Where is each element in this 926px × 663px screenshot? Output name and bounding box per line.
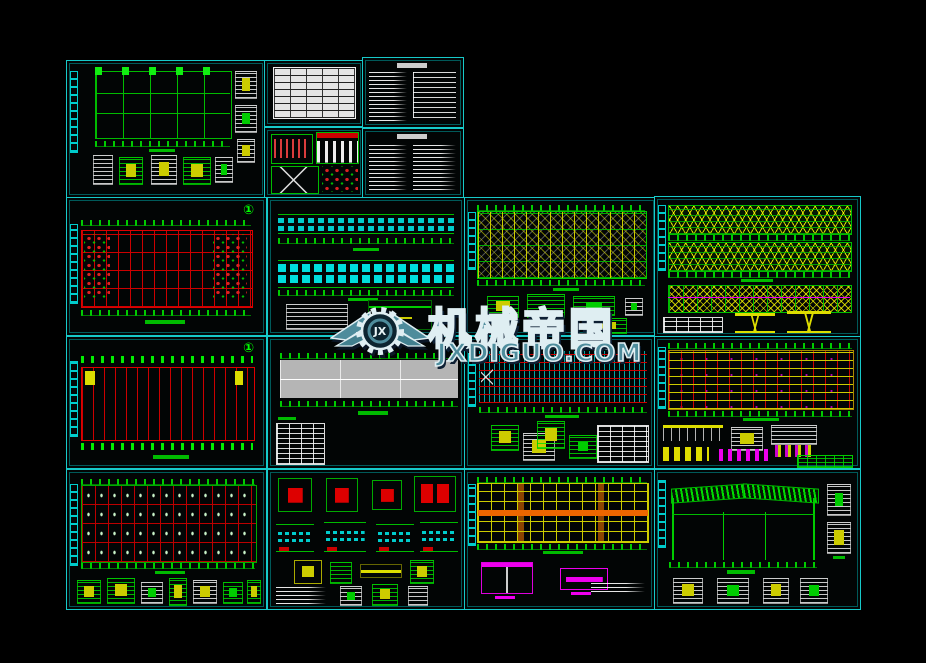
beam-elevation-2 [278,260,454,288]
gray-slab-band [280,360,458,398]
drawing-title-bar [727,570,755,574]
notes-title-bar [397,63,427,68]
side-detail [827,484,851,516]
connection-detail [763,578,789,604]
rail-detail [316,132,359,164]
drawing-title-bar [353,248,379,251]
dimension-row [95,141,230,147]
bracing-grid [477,211,647,279]
drawing-title-bar [358,411,388,415]
truss-detail [735,313,775,333]
schedule-table [273,67,356,119]
notes-table [413,72,456,118]
logo-monogram: JX [373,325,387,338]
beam-hatch [278,275,454,283]
x-brace-elevation [668,285,852,313]
anchor-plate-detail [326,478,358,512]
title-strip [70,224,78,304]
girt-detail [731,427,763,451]
title-strip [70,71,78,153]
bolt-detail [408,586,428,606]
dimension-row [668,235,850,241]
footing-detail [107,578,135,604]
frame-haunch-blobs [95,67,230,75]
roof-rafter-left [671,483,747,503]
bracing-detail [625,298,643,316]
notes-text-column [369,142,407,190]
drawing-title-bar [149,149,175,152]
drawing-title-bar [743,418,779,421]
hatched-band [668,242,852,272]
frame-beam-line [95,113,230,114]
detail-glyph [235,71,257,99]
yellow-red-grid [668,350,854,410]
girt-elevation-grid [477,483,649,543]
tie-beam [672,514,815,515]
frame-grid [95,71,232,139]
detail-label-bar [833,556,845,559]
bolt-detail [294,560,322,584]
detail-label-bar [495,596,515,599]
sheet-wall-girt-elevation [464,469,655,610]
dimension-row [668,411,852,417]
magenta-line [668,297,850,298]
dimension-row [81,310,251,316]
girt-section-detail [663,425,723,441]
notes-title-bar [397,134,427,139]
purlin-detail [537,421,565,449]
title-strip [658,347,666,409]
watermark-logo: JX [330,300,430,362]
notes-text-column [413,142,456,190]
sheet-column-layout-plan: ① [66,336,267,469]
magenta-detail-strip [719,449,769,461]
dimension-row [668,343,852,349]
bolt-detail [340,586,362,606]
title-strip [658,480,666,548]
interior-post [765,512,766,560]
sheet-girt-layout-plan [654,336,861,469]
sheet-schedule-table [264,60,364,127]
magenta-detail [481,562,533,594]
notes-text [591,580,645,592]
frame-column [813,498,815,560]
dimension-row [477,280,645,286]
parts-table [597,425,649,463]
footing-detail [169,578,187,606]
frame-beam-line [95,93,230,94]
hatched-band [668,205,852,235]
connection-detail [800,578,828,604]
bolt-detail [372,584,398,606]
slab-ticks [280,360,458,398]
detail-mark-circle: ① [243,204,254,217]
dimension-row [278,238,454,244]
beam-elevation-1 [278,214,454,234]
title-strip [70,484,78,566]
drawing-title-bar [145,320,185,324]
title-strip [468,484,476,546]
girt-detail [771,425,817,445]
dimension-row [479,407,647,413]
dimension-row [81,220,251,226]
yellow-end-block [235,371,243,385]
beam-hatch [278,226,454,231]
detail-glyph [237,139,255,163]
parts-table [663,317,723,333]
watermark-domain-text: JXDIGUO.COM [437,338,642,367]
base-section-detail [376,524,414,552]
bolt-detail [360,564,402,578]
anchor-plate-detail-double [414,476,456,512]
misc-details [322,166,358,192]
sheet-design-notes-2 [362,128,464,198]
sheet-small-details [264,127,364,198]
title-strip [658,205,666,271]
footing-detail [77,580,101,604]
interior-post [723,512,724,560]
sheet-portal-section [654,469,861,610]
anchor-plate-detail [372,480,402,510]
winged-gear-logo: JX [330,300,430,362]
dimension-row [81,563,255,569]
notes-text [276,586,326,604]
sheet-anchor-details [267,469,465,610]
drawing-title-bar [741,279,773,282]
base-section-detail [276,524,314,552]
sheet-frame-elevation [66,60,266,198]
purlin-detail [569,435,597,459]
yellow-detail-strip [663,447,709,461]
dimension-row [280,401,458,407]
footing-detail [141,582,163,604]
column-detail [119,157,143,185]
dimension-row [668,272,850,278]
bolt-detail [330,562,352,584]
column-detail [151,155,177,185]
truss-detail [787,311,831,333]
sheet-foundation-plan [66,469,267,610]
green-table [797,455,853,468]
symbol-row [81,443,253,450]
plan-end-zone [213,234,247,300]
column-detail [93,155,113,185]
sheet-design-notes-1 [362,57,464,128]
connection-detail [673,578,703,604]
orange-band [478,510,648,516]
detail-label-bar [571,592,591,595]
x-brace-detail [271,166,319,194]
foundation-grid [81,485,257,563]
side-detail [827,522,851,554]
dimension-row [477,544,647,550]
column-detail [183,157,211,185]
red-hatch-detail [271,134,313,164]
drawing-title-bar [155,571,185,574]
beam-hatch [278,264,454,272]
sheet-roof-framing-plan: ① [66,197,267,336]
beam-hatch [278,218,454,223]
bolt-detail [410,560,434,584]
roof-rafter-right [743,483,819,503]
drawing-title-bar [153,455,189,459]
drawing-title-bar [553,288,579,291]
sheet-wall-bracing [654,196,861,337]
dimension-row [669,562,817,568]
title-strip [468,212,476,270]
base-section-detail [324,522,366,552]
purlin-detail [491,425,519,451]
yellow-end-block [85,371,95,385]
parts-table [276,423,325,465]
footing-detail [247,580,261,604]
detail-mark-circle: ① [243,342,254,355]
table-title-bar [278,417,296,420]
detail-glyph [235,105,257,133]
symbol-row [81,356,253,363]
cad-drawing-set-preview: ① [0,0,926,663]
base-section-detail [420,522,458,552]
footing-detail [223,582,243,604]
connection-detail [717,578,749,604]
drawing-title-bar [545,415,579,418]
column-detail [215,157,233,183]
footing-detail [193,580,217,604]
plan-end-zone [84,234,110,300]
frame-column [672,498,674,560]
notes-text-column [369,71,407,121]
title-strip [70,361,78,437]
drawing-title-bar [543,551,583,554]
anchor-plate-detail [278,478,312,512]
red-column-plan [81,367,255,441]
